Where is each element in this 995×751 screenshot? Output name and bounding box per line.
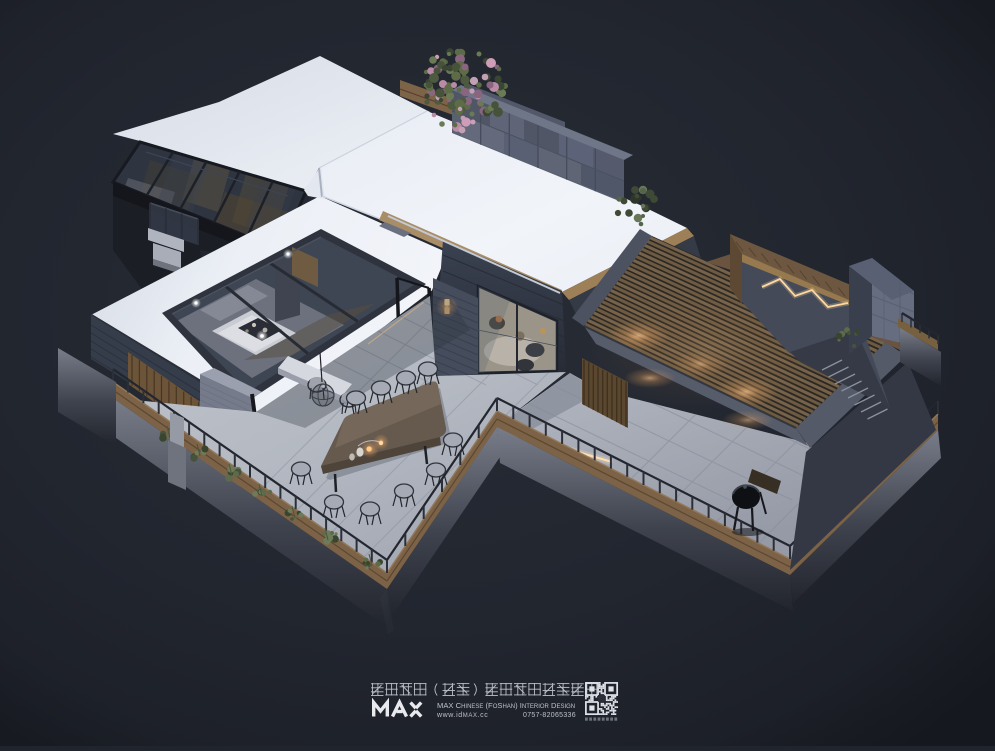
svg-text:0757-82065336: 0757-82065336 — [523, 712, 576, 719]
svg-text:www.idMAX.cc: www.idMAX.cc — [436, 712, 488, 719]
